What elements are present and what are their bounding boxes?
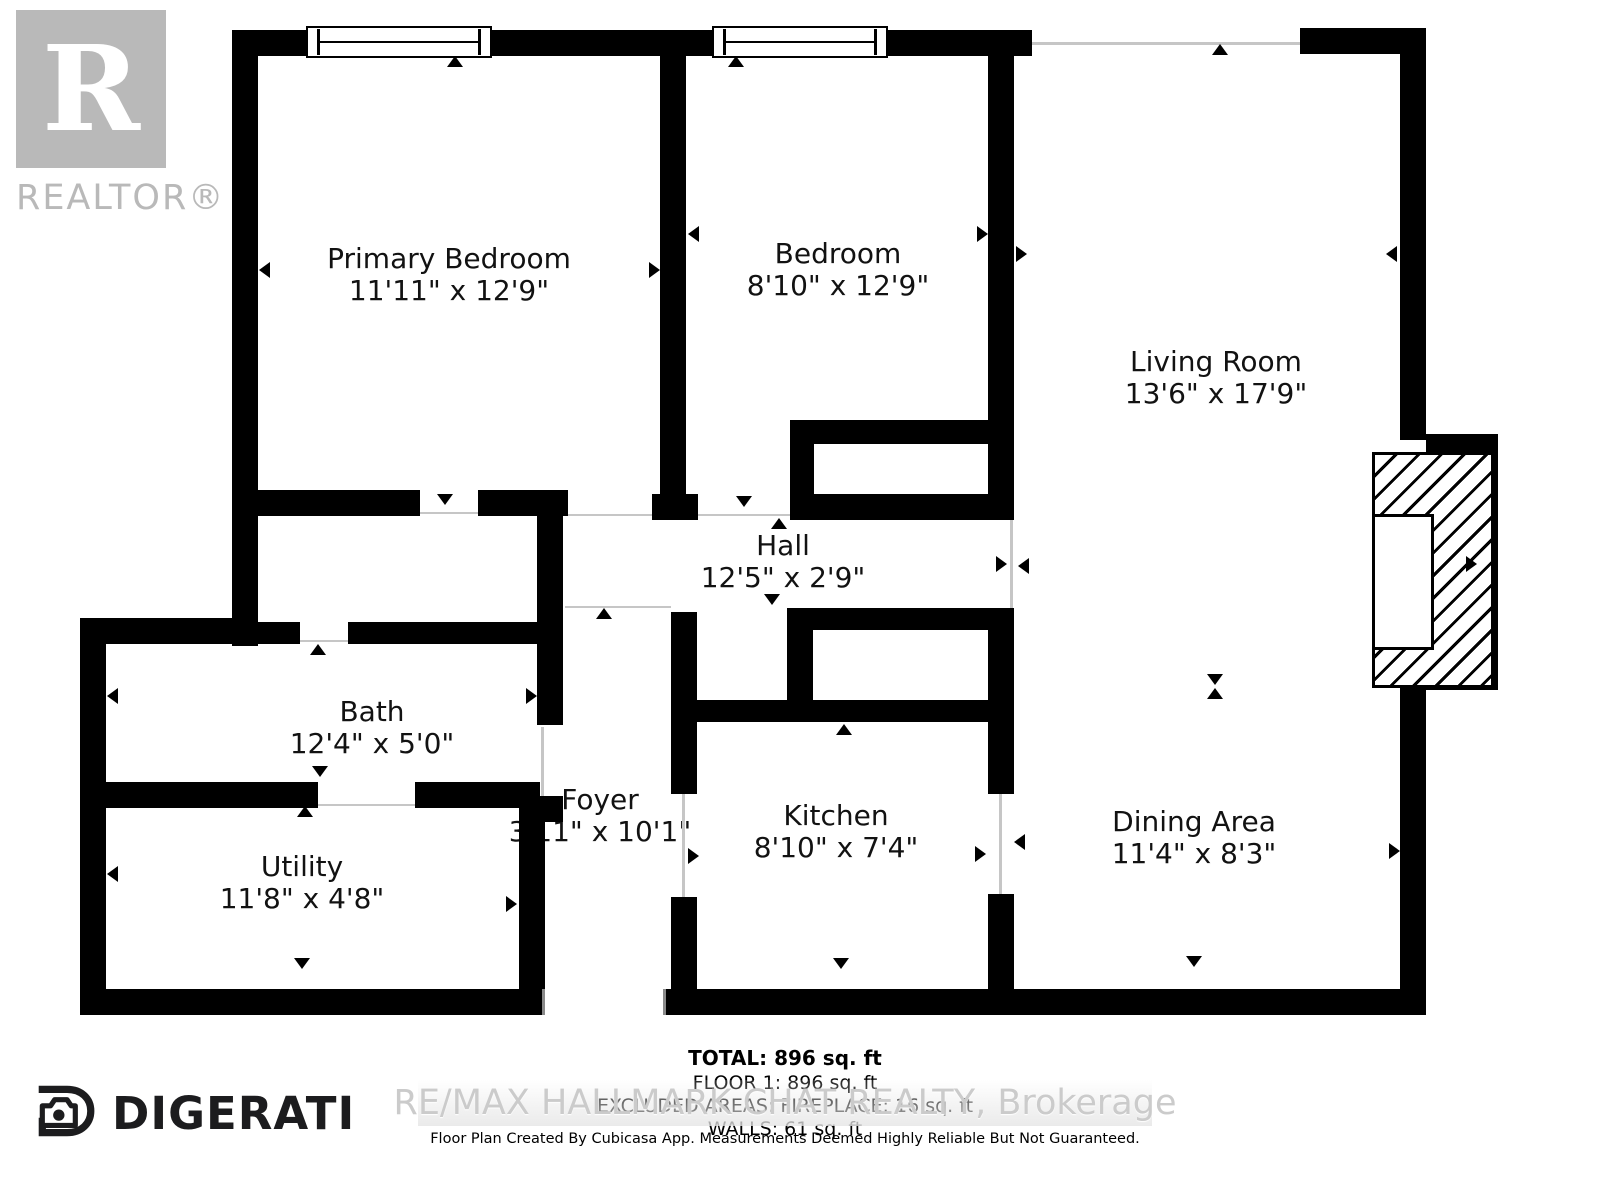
measure-arrow-icon: [526, 896, 537, 912]
wall-right-lower: [1400, 670, 1426, 1015]
door-marker-icon: [736, 496, 752, 507]
measure-arrow-icon: [107, 866, 118, 882]
measure-arrow-icon: [1389, 843, 1400, 859]
door-marker-icon: [437, 494, 453, 505]
wall-kitchen-left-lower: [671, 897, 697, 989]
measure-arrow-icon: [975, 846, 986, 862]
opening-hall-west: [568, 514, 660, 516]
room-name: Dining Area: [1112, 806, 1277, 838]
realtor-logo-label: REALTOR®: [16, 178, 225, 218]
wall-bath-bottom-b: [415, 782, 540, 808]
measure-arrow-icon: [526, 688, 537, 704]
wall-hall-corner: [652, 494, 698, 520]
room-name: Bedroom: [747, 238, 929, 270]
opening-foyer-kitchen: [682, 794, 685, 897]
wall-closet-top: [797, 420, 988, 444]
door-marker-icon: [310, 644, 326, 655]
door-marker-icon: [294, 958, 310, 969]
opening-living-top: [1032, 42, 1300, 45]
measure-arrow-icon: [996, 556, 1007, 572]
opening-bedroom-door: [698, 514, 790, 516]
opening-bath-foyer: [541, 727, 544, 796]
room-dims: 8'10" x 7'4": [754, 832, 919, 864]
digerati-logo: DIGERATI: [32, 1078, 355, 1148]
door-marker-icon: [1212, 44, 1228, 55]
window-end-left: [317, 29, 320, 55]
brokerage-watermark-text: RE/MAX HALLMARK CHAT REALTY, Brokerage: [394, 1083, 1177, 1123]
window-primary-bedroom: [306, 26, 492, 58]
window-end-left: [723, 29, 726, 55]
measure-arrow-icon: [688, 848, 699, 864]
opening-bath-door: [300, 640, 348, 642]
door-marker-icon: [771, 518, 787, 529]
wall-kitchen-top: [671, 700, 1014, 722]
measure-arrow-icon: [259, 262, 270, 278]
entry-jamb-left: [542, 989, 545, 1015]
room-label-bath: Bath 12'4" x 5'0": [290, 696, 455, 760]
window-end-right: [478, 29, 481, 55]
wall-primary-left: [232, 30, 258, 646]
door-marker-icon: [764, 594, 780, 605]
room-dims: 12'5" x 2'9": [701, 562, 866, 594]
fireplace-firebox: [1372, 514, 1434, 650]
room-label-primary-bedroom: Primary Bedroom 11'11" x 12'9": [327, 243, 571, 307]
opening-primary-door: [420, 512, 478, 514]
door-marker-icon: [836, 724, 852, 735]
wall-bath-bottom-a: [106, 782, 318, 808]
window-end-right: [874, 29, 877, 55]
room-dims: 11'4" x 8'3": [1112, 838, 1277, 870]
door-marker-icon: [1207, 674, 1223, 685]
measure-arrow-icon: [688, 226, 699, 242]
door-marker-icon: [297, 806, 313, 817]
window-pane-line: [320, 41, 478, 43]
room-name: Primary Bedroom: [327, 243, 571, 275]
opening-utility-door: [318, 804, 415, 806]
digerati-logo-label: DIGERATI: [112, 1087, 355, 1140]
wall-primary-bottom-a: [258, 490, 420, 516]
wall-bath-top-b: [348, 622, 540, 644]
wall-left: [80, 618, 106, 1015]
door-marker-icon: [596, 608, 612, 619]
wall-bottom-left: [80, 989, 542, 1015]
wall-between-bedrooms: [660, 30, 686, 516]
room-label-bedroom: Bedroom 8'10" x 12'9": [747, 238, 929, 302]
wall-hall-bottom: [787, 608, 1014, 630]
window-bedroom: [712, 26, 888, 58]
total-area: TOTAL: 896 sq. ft: [435, 1046, 1135, 1070]
wall-bottom-right: [666, 989, 1426, 1015]
measure-arrow-icon: [506, 896, 517, 912]
room-dims: 11'8" x 4'8": [220, 883, 385, 915]
room-name: Hall: [701, 530, 866, 562]
measure-arrow-icon: [1014, 834, 1025, 850]
wall-right-upper: [1400, 28, 1426, 440]
realtor-r-monogram: R: [42, 30, 140, 148]
wall-closet-bottom: [790, 494, 1014, 520]
room-name: Utility: [220, 851, 385, 883]
room-dims: 8'10" x 12'9": [747, 270, 929, 302]
measure-arrow-icon: [1386, 246, 1397, 262]
room-dims: 11'11" x 12'9": [327, 275, 571, 307]
opening-hall-living: [1010, 520, 1013, 610]
room-dims: 12'4" x 5'0": [290, 728, 455, 760]
door-marker-icon: [833, 958, 849, 969]
room-name: Kitchen: [754, 800, 919, 832]
realtor-logo: R REALTOR®: [16, 10, 225, 218]
wall-living-left-upper: [988, 30, 1014, 420]
wall-kitchen-left-upper: [671, 612, 697, 794]
measure-arrow-icon: [107, 688, 118, 704]
room-label-dining-area: Dining Area 11'4" x 8'3": [1112, 806, 1277, 870]
measure-arrow-icon: [1016, 246, 1027, 262]
measure-arrow-icon: [1018, 558, 1029, 574]
measure-arrow-icon: [977, 226, 988, 242]
measure-arrow-icon: [649, 262, 660, 278]
brokerage-watermark: RE/MAX HALLMARK CHAT REALTY, Brokerage: [418, 1080, 1152, 1126]
disclaimer-text: Floor Plan Created By Cubicasa App. Meas…: [335, 1131, 1235, 1147]
door-marker-icon: [447, 56, 463, 67]
digerati-camera-icon: [32, 1078, 98, 1148]
room-name: Bath: [290, 696, 455, 728]
room-dims: 13'6" x 17'9": [1125, 378, 1307, 410]
door-marker-icon: [312, 766, 328, 777]
wall-foyer-left-upper: [537, 490, 563, 725]
wall-bath-top-a: [258, 622, 300, 644]
opening-hall-foyer: [565, 606, 671, 608]
measure-arrow-icon: [1466, 556, 1477, 572]
room-name: Living Room: [1125, 346, 1307, 378]
room-label-kitchen: Kitchen 8'10" x 7'4": [754, 800, 919, 864]
room-label-utility: Utility 11'8" x 4'8": [220, 851, 385, 915]
wall-closet-left: [790, 420, 814, 520]
room-label-living-room: Living Room 13'6" x 17'9": [1125, 346, 1307, 410]
opening-kitchen-dining: [999, 794, 1002, 894]
wall-kitchen-right-lower: [988, 894, 1014, 989]
door-marker-icon: [1207, 688, 1223, 699]
door-marker-icon: [1186, 956, 1202, 967]
window-pane-line: [726, 41, 874, 43]
door-marker-icon: [728, 56, 744, 67]
realtor-logo-icon: R: [16, 10, 166, 168]
room-label-hall: Hall 12'5" x 2'9": [701, 530, 866, 594]
floor-plan-page: R REALTOR®: [0, 0, 1600, 1200]
